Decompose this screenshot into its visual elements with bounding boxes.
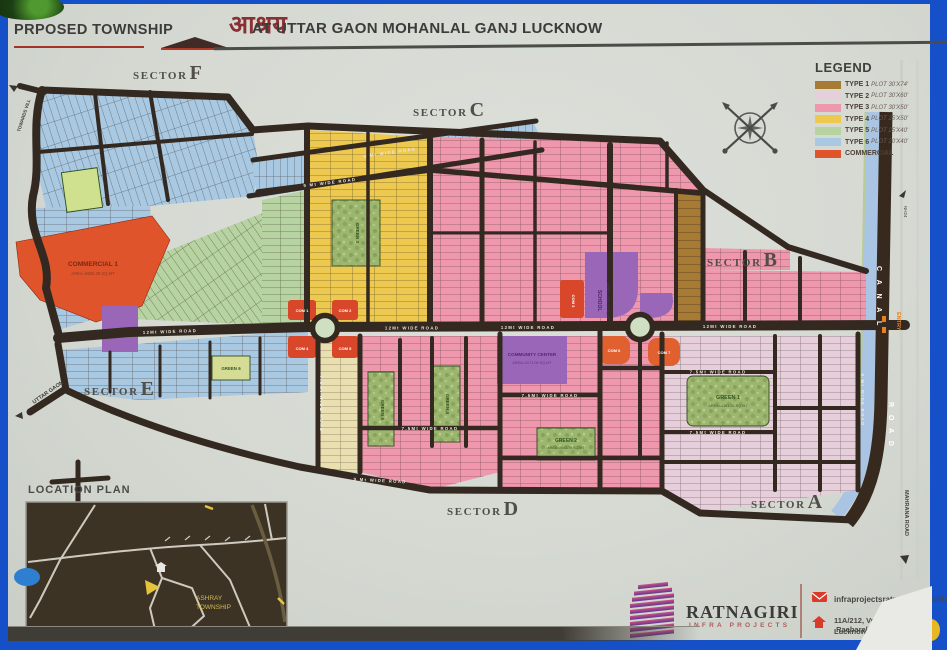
legend-label: COMMERCIAL — [845, 150, 893, 157]
photo-frame: COMMERCIAL 1 AREA=8605.38 SQ.MT COMMUNIT… — [0, 0, 947, 650]
road-edge-label: R O A D — [887, 402, 894, 449]
legend-heading: LEGEND — [815, 60, 943, 75]
legend-detail: PLOT 20'X40' — [871, 139, 908, 145]
type1-brown-plots — [676, 191, 703, 327]
company-email: infraprojectsratnagiri@gmail.com — [834, 595, 947, 604]
location-marker-label-1: ASHRAY — [196, 595, 223, 602]
company-name: RATNAGIRI — [686, 602, 799, 623]
mahrana-road-label: MAHRANA ROAD — [903, 490, 909, 536]
legend-detail: PLOT 30'X74' — [871, 82, 908, 88]
nh-arrow-icon — [899, 190, 906, 198]
road-label-75-4: 7.5Mt WIDE ROAD — [690, 430, 747, 435]
park-green-2 — [537, 428, 595, 460]
title-bar: PRPOSED TOWNSHIP आश्रय AT UTTAR GAON MOH… — [14, 10, 714, 50]
legend-swatch-type6 — [815, 138, 841, 146]
legend-swatch-type2 — [815, 92, 841, 100]
project-logo: आश्रय — [161, 13, 247, 38]
location-plan: ASHRAY TOWNSHIP — [14, 502, 287, 634]
road-label-12m-1: 12Mt WIDE ROAD — [385, 326, 439, 331]
com-3-label: COM 3 — [571, 295, 576, 308]
sector-label-b: SECTORB — [707, 249, 777, 272]
legend-row-type5: TYPE 5 PLOT 25'X40' — [815, 125, 943, 137]
road-label-12m-3: 12Mt WIDE ROAD — [703, 324, 757, 329]
legend-row-type3: TYPE 3 PLOT 30'X50' — [815, 102, 943, 114]
green-3-label: GREEN 3 — [355, 223, 360, 244]
sector-label-e: SECTORE — [84, 378, 154, 401]
table-edge-shadow — [8, 626, 700, 641]
park-sector-f — [61, 168, 102, 213]
road-label-9m-4: 9 Mt WIDE ROAD — [860, 373, 865, 426]
community-center-area: AREA=2071.06 SQ.MT — [512, 361, 552, 365]
location-marker-label-2: TOWNSHIP — [196, 604, 231, 611]
commercial-1-label: COMMERCIAL 1 — [68, 261, 118, 268]
roundabout-west — [313, 316, 338, 341]
legend-row-type4: TYPE 4 PLOT 25'X50' — [815, 114, 943, 126]
park-green-1 — [687, 376, 769, 426]
green-2-area: AREA=2043.79 SQ.MT — [547, 446, 585, 450]
title-prefix: PRPOSED TOWNSHIP — [14, 22, 173, 38]
uttar-gaon-arrow-icon — [15, 412, 23, 419]
school-area: AREA=2508.75 SQ.MT — [606, 283, 610, 321]
location-plan-heading: LOCATION PLAN — [28, 484, 131, 496]
legend-row-commercial: COMMERCIAL — [815, 148, 943, 160]
com-5-label: COM 5 — [339, 346, 352, 351]
sector-label-a: SECTORA — [751, 491, 822, 514]
green-2-label: GREEN 2 — [555, 438, 577, 444]
green-4-label: GREEN 4 — [445, 394, 450, 415]
sector-label-f: SECTORF — [133, 62, 202, 85]
road-label-75-5: 7.5Mt WIDE ROAD — [319, 376, 324, 433]
company-subtitle: INFRA PROJECTS — [689, 622, 790, 629]
legend-swatch-type3 — [815, 104, 841, 112]
road-label-12m-2: 12Mt WIDE ROAD — [501, 325, 555, 330]
plot-blocks — [33, 90, 866, 513]
legend-label: TYPE 4 — [845, 116, 869, 123]
title-suffix: AT UTTAR GAON MOHANLAL GANJ LUCKNOW — [252, 20, 602, 37]
legend-label: TYPE 1 — [845, 81, 869, 88]
township-map: COMMERCIAL 1 AREA=8605.38 SQ.MT COMMUNIT… — [0, 0, 947, 650]
com-6-label: COM 6 — [608, 348, 621, 353]
sector-label-c: SECTORC — [413, 99, 484, 122]
community-center-block — [497, 336, 567, 384]
legend-detail: PLOT 25'X50' — [871, 116, 908, 122]
mahrana-arrow-icon — [900, 555, 909, 564]
nh-label: NH24 — [903, 206, 908, 218]
com-7-label: COM 7 — [658, 350, 671, 355]
towards-arrow-icon — [9, 85, 18, 92]
school-label: SCHOOL — [596, 290, 602, 311]
legend-detail: PLOT 30'X50' — [871, 105, 908, 111]
legend-row-type1: TYPE 1 PLOT 30'X74' — [815, 79, 943, 91]
green-1-label: GREEN 1 — [716, 395, 740, 401]
roundabout-east — [628, 315, 653, 340]
legend-row-type2: TYPE 2 PLOT 30'X60' — [815, 91, 943, 103]
sector-b-plots — [703, 270, 866, 327]
green-5-label: GREEN 5 — [380, 400, 385, 421]
legend-detail: PLOT 25'X40' — [871, 128, 908, 134]
compass-icon — [722, 102, 778, 154]
towards-vill-label: TOWARDS VILL — [16, 98, 31, 132]
road-label-75-1: 7.5Mt WIDE ROAD — [402, 426, 459, 431]
community-center-label: COMMUNITY CENTER — [508, 352, 557, 357]
road-label-75-3: 7.5Mt WIDE ROAD — [690, 370, 747, 375]
legend-swatch-type5 — [815, 127, 841, 135]
location-site-icon — [157, 566, 165, 572]
location-plan-box — [26, 502, 287, 634]
legend-detail: PLOT 30'X60' — [871, 93, 908, 99]
roof-icon — [161, 20, 229, 48]
com-2-label: COM 2 — [339, 308, 352, 313]
canal-label: C A N A L — [875, 266, 882, 329]
legend-swatch-commercial — [815, 150, 841, 158]
company-address-2: Lucknow 226025 — [834, 627, 894, 636]
legend: LEGEND TYPE 1 PLOT 30'X74' TYPE 2 PLOT 3… — [815, 60, 943, 160]
title-underline-red — [14, 46, 144, 48]
road-label-75-2: 7.5Mt WIDE ROAD — [522, 393, 579, 398]
legend-swatch-type1 — [815, 81, 841, 89]
legend-swatch-type4 — [815, 115, 841, 123]
legend-row-type6: TYPE 6 PLOT 20'X40' — [815, 137, 943, 149]
legend-label: TYPE 6 — [845, 139, 869, 146]
green-1-area: AREA=4181.55 SQ.MT — [708, 404, 748, 408]
legend-label: TYPE 2 — [845, 93, 869, 100]
entry-label: ENTRY — [895, 312, 901, 331]
company-divider — [800, 584, 802, 638]
com-4-label: COM 4 — [296, 346, 309, 351]
green-6-label: GREEN 6 — [221, 366, 241, 371]
location-blue-marker — [14, 568, 40, 586]
commercial-1-area: AREA=8605.38 SQ.MT — [71, 271, 115, 276]
legend-label: TYPE 3 — [845, 104, 869, 111]
com-1-label: COM 1 — [296, 308, 309, 313]
legend-label: TYPE 5 — [845, 127, 869, 134]
sector-label-d: SECTORD — [447, 498, 518, 521]
